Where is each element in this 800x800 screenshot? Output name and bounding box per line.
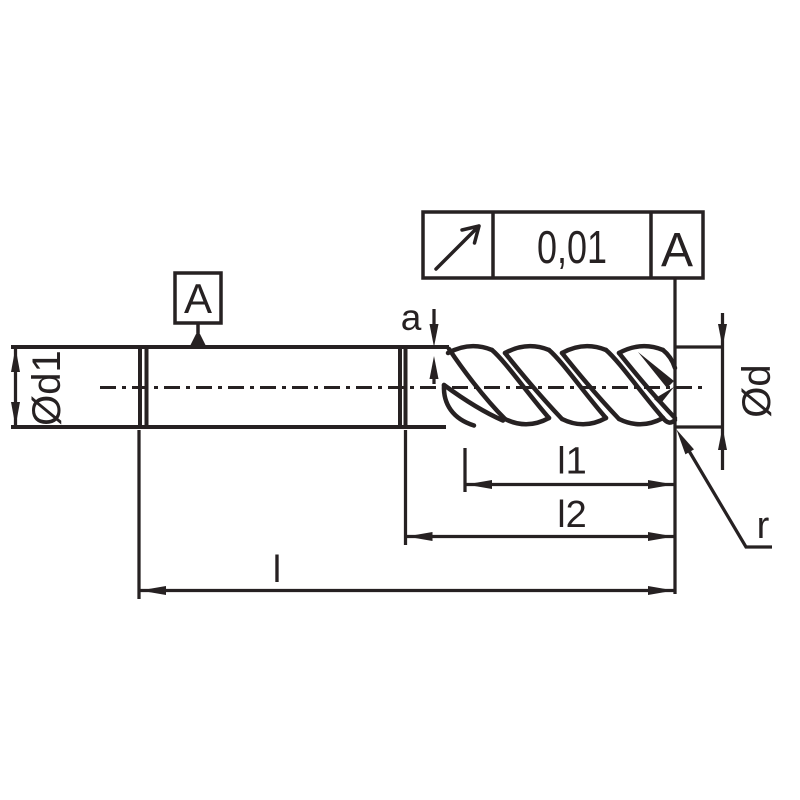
arrowhead-down: [430, 324, 439, 347]
flute-crest: [505, 346, 549, 353]
flute-end-top-corner: [663, 350, 675, 368]
reach-length-label: l2: [557, 494, 587, 536]
runout-tolerance-value: 0,01: [537, 221, 607, 273]
tolerance-frame: 0,01 A: [423, 212, 703, 278]
arrowhead-right: [648, 480, 674, 489]
datum-flag: A: [175, 273, 221, 348]
flute-crest: [448, 346, 492, 353]
datum-flag-letter: A: [184, 275, 212, 322]
flute-end-bottom-corner: [663, 418, 675, 423]
arrowhead-left: [407, 532, 433, 541]
flute-crest: [619, 346, 663, 353]
corner-radius-label: r: [757, 505, 770, 547]
flute-helix-line: [492, 350, 549, 418]
arrowhead-up: [11, 348, 20, 373]
runout-datum-reference: A: [661, 224, 693, 277]
flute-lead-strand: [444, 385, 474, 426]
flute-trough: [505, 418, 549, 424]
arrowhead-left: [466, 480, 492, 489]
arrowhead-right: [648, 532, 674, 541]
flute-crest: [562, 346, 606, 353]
overall-length-label: l: [273, 549, 281, 591]
dimension-flute-length: l1: [465, 441, 675, 493]
dimension-shank-diameter: Ød1: [11, 348, 69, 427]
flute-section: [444, 346, 675, 425]
shank-diameter-label: Ød1: [25, 350, 69, 426]
flute-helix-line: [606, 350, 663, 418]
drawing-canvas: 0,01 A A: [0, 0, 800, 800]
arrowhead-down: [718, 324, 727, 347]
flute-trough: [562, 418, 606, 424]
arrowhead-right: [648, 586, 674, 595]
cutting-diameter-label: Ød: [735, 364, 779, 417]
circular-runout-icon: [436, 226, 479, 269]
dimension-cutting-diameter: Ød: [676, 313, 779, 470]
flute-trough: [619, 418, 663, 424]
flute-length-label: l1: [557, 441, 587, 483]
arrowhead-left: [140, 586, 166, 595]
relief-depth-label: a: [401, 297, 422, 338]
flute-helix-line: [549, 350, 606, 418]
arrowhead-up-left: [677, 430, 695, 455]
arrowhead-down: [11, 402, 20, 427]
dimension-reach-length: l2: [406, 430, 676, 545]
arrowhead-up: [718, 427, 727, 450]
end-mill-technical-drawing: 0,01 A A: [0, 0, 800, 800]
